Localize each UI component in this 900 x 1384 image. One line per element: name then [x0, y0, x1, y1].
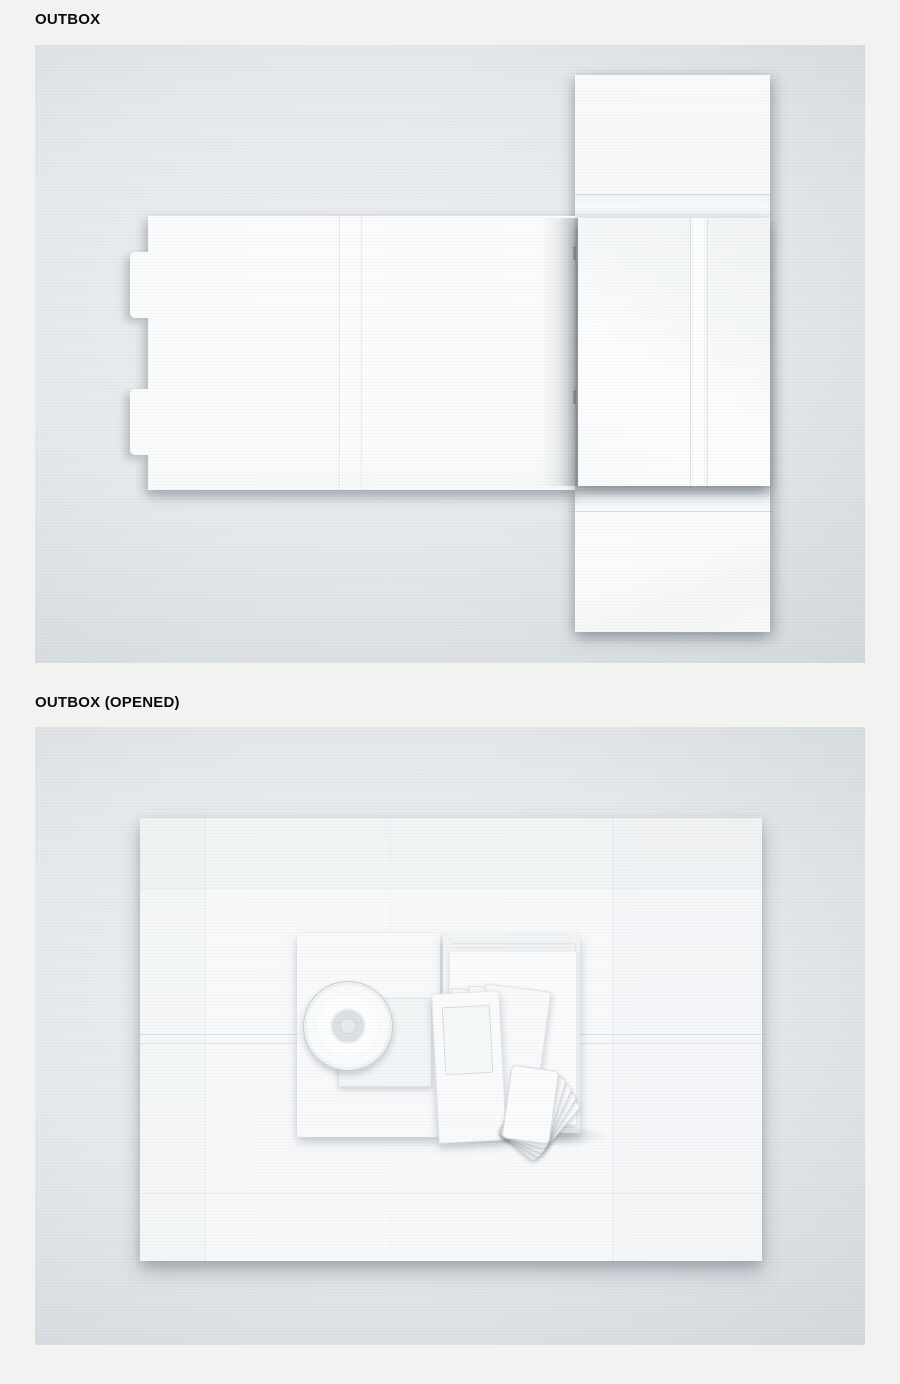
crease-line-vertical [612, 818, 613, 1261]
locking-tab-top [130, 252, 149, 318]
outbox-flat-mockup-panel [35, 45, 865, 663]
section-heading-outbox: OUTBOX [35, 10, 100, 30]
photocard [502, 1065, 560, 1145]
section-heading-outbox-opened: OUTBOX (OPENED) [35, 693, 180, 713]
slit-cut-top [573, 246, 576, 260]
product-mockup-page: OUTBOX OUTBOX (OPENED) [0, 0, 900, 1384]
leaflet-window [442, 1005, 493, 1075]
page-edge-line [451, 943, 572, 944]
crease-line-horizontal [140, 1193, 762, 1194]
outbox-body-panel [148, 216, 575, 490]
spine-rib [690, 218, 708, 486]
folded-leaflet-front [431, 990, 507, 1143]
bottom-flap-sheen [575, 513, 770, 632]
fold-line-bottom [575, 511, 770, 512]
cd-disc [303, 981, 393, 1071]
fold-band-top [575, 195, 770, 217]
crease-line-vertical [205, 818, 206, 1261]
outbox-opened-mockup-panel [35, 727, 865, 1345]
locking-tab-bottom [130, 389, 149, 455]
fold-band-bottom [575, 486, 770, 512]
spine-fold-line-left [339, 216, 340, 490]
outbox-front-lid [578, 218, 770, 486]
crease-tile-tint [140, 818, 205, 1261]
crease-tile-tint [612, 818, 762, 1261]
page-edge-line [451, 947, 572, 948]
crease-line-horizontal [140, 888, 762, 889]
slit-cut-bottom [573, 390, 576, 404]
spine-fold-line-right [361, 216, 362, 490]
